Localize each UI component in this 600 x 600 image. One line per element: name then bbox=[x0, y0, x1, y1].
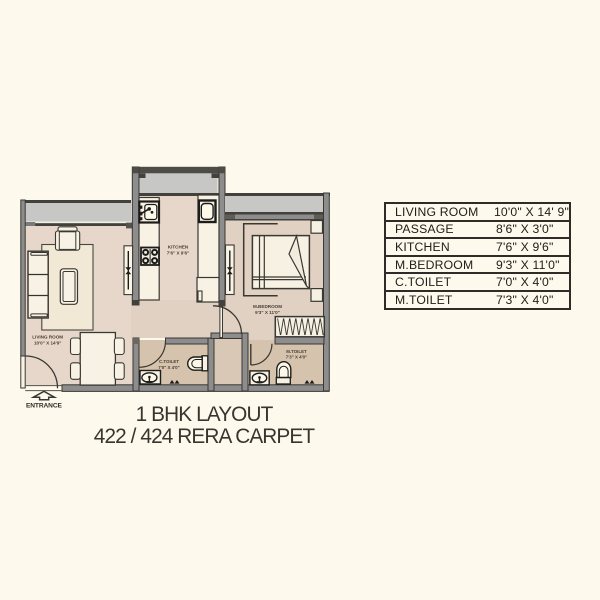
svg-text:7'0" X 4'0": 7'0" X 4'0" bbox=[158, 365, 179, 370]
svg-text:M.TOILET: M.TOILET bbox=[286, 349, 307, 354]
svg-text:KITCHEN: KITCHEN bbox=[168, 245, 189, 250]
svg-text:M.BEDROOM: M.BEDROOM bbox=[253, 304, 282, 309]
svg-text:9'3" X 11'0": 9'3" X 11'0" bbox=[255, 310, 280, 315]
svg-text:7'6" X 9'6": 7'6" X 9'6" bbox=[167, 251, 189, 256]
svg-text:C.TOILET: C.TOILET bbox=[159, 359, 179, 364]
svg-text:7'3" X 4'0": 7'3" X 4'0" bbox=[286, 355, 307, 360]
svg-text:10'0" X 14'9": 10'0" X 14'9" bbox=[34, 341, 62, 346]
svg-text:LIVING ROOM: LIVING ROOM bbox=[32, 335, 63, 340]
